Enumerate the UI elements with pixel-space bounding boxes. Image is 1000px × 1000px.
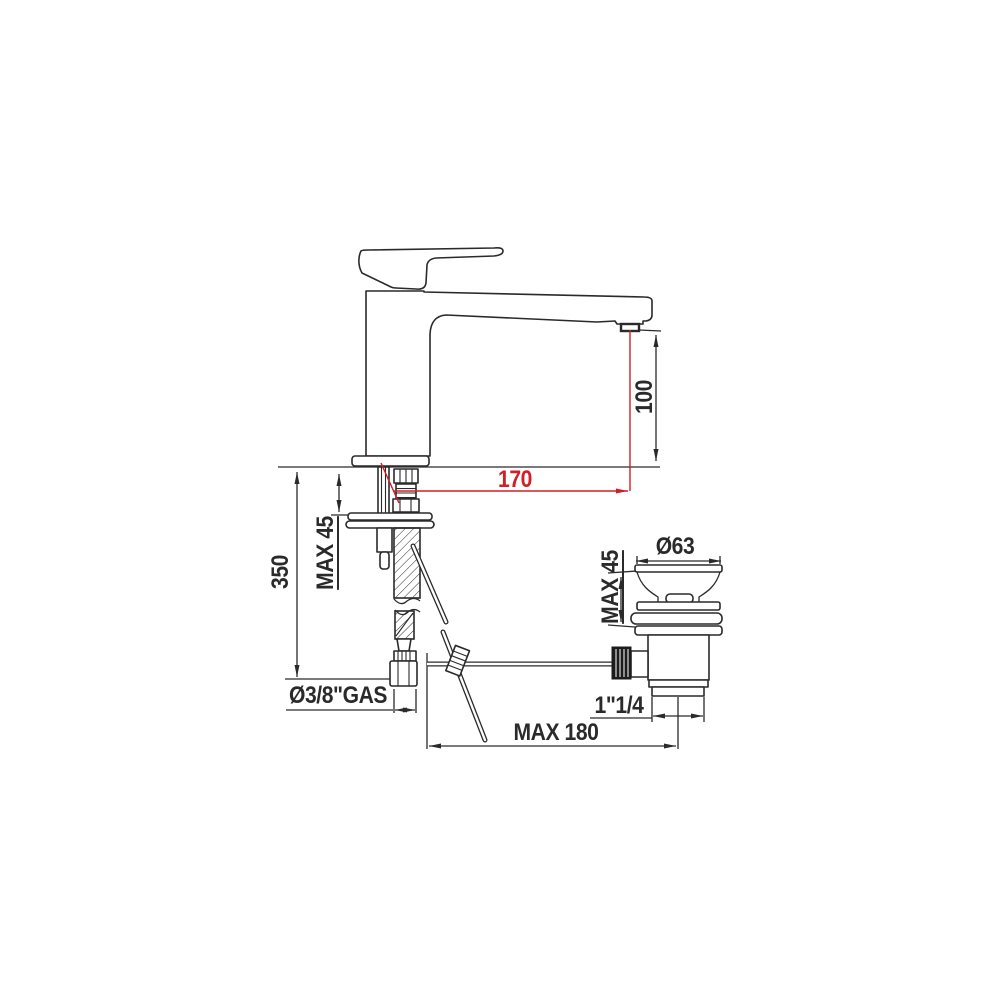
drain-body: [648, 635, 709, 680]
dim-drain-thread-label: 1"1/4: [595, 694, 644, 718]
drain-tailpiece: [649, 680, 708, 687]
supply-hose-upper: [394, 528, 420, 598]
dim-hose-length-label: 350: [269, 555, 293, 589]
dim-drain-flange-diameter-label: Ø63: [656, 535, 695, 559]
technical-drawing-canvas: 170 100 350 MAX 45 Ø63 MAX 45 Ø3/8"GAS 1…: [0, 0, 1000, 1000]
dim-spout-reach-label: 170: [498, 468, 532, 492]
drain-assembly: [612, 565, 722, 696]
drain-flange-rim: [635, 565, 722, 572]
mounting-washer: [346, 521, 434, 528]
base-escutcheon: [352, 456, 429, 466]
faucet-technical-drawing: [0, 0, 1000, 1000]
pop-up-linkage: [413, 546, 612, 740]
aerator: [621, 324, 639, 331]
dim-spout-height-label: 100: [633, 380, 657, 414]
dim-rod-reach-label: MAX 180: [514, 721, 599, 745]
faucet-body: [352, 248, 652, 466]
dim-max-deck-drain-label: MAX 45: [599, 550, 623, 624]
faucet-underbody: [346, 467, 434, 686]
body-and-spout: [366, 291, 652, 456]
mounting-washer: [348, 513, 432, 520]
dim-hose-thread-label: Ø3/8"GAS: [289, 684, 387, 708]
hose-hex-nut: [390, 661, 417, 686]
lever-handle: [359, 248, 503, 289]
dim-max-deck-faucet-label: MAX 45: [314, 516, 338, 590]
